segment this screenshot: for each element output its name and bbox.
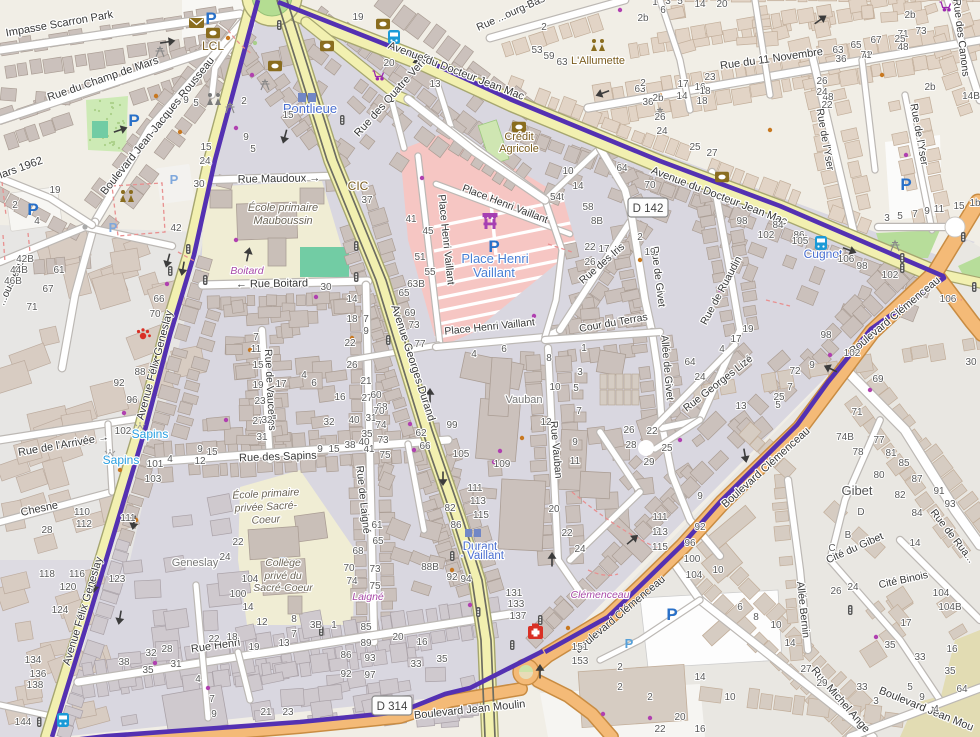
svg-text:73: 73	[377, 435, 389, 446]
svg-text:70: 70	[373, 406, 385, 417]
svg-text:66: 66	[153, 294, 165, 305]
svg-text:75: 75	[379, 450, 391, 461]
svg-text:3B: 3B	[310, 620, 323, 631]
svg-text:92: 92	[340, 669, 352, 680]
svg-text:2b: 2b	[904, 10, 916, 21]
svg-text:82: 82	[894, 490, 906, 501]
svg-text:10: 10	[770, 620, 782, 631]
svg-text:64: 64	[956, 684, 968, 695]
svg-text:8B: 8B	[591, 216, 604, 227]
svg-text:9: 9	[919, 692, 925, 703]
svg-text:14: 14	[694, 0, 706, 10]
svg-text:14: 14	[572, 181, 584, 192]
svg-text:3: 3	[884, 213, 890, 224]
svg-text:4: 4	[34, 216, 40, 227]
svg-text:3: 3	[873, 696, 879, 707]
svg-text:12: 12	[194, 456, 206, 467]
svg-text:9: 9	[572, 437, 578, 448]
svg-text:69: 69	[404, 308, 416, 319]
svg-text:110: 110	[74, 507, 90, 518]
svg-text:105: 105	[453, 449, 470, 460]
svg-text:8: 8	[546, 353, 552, 364]
svg-text:Laigné: Laigné	[352, 591, 384, 603]
svg-text:75: 75	[369, 581, 381, 592]
svg-text:111: 111	[467, 483, 483, 494]
svg-text:3: 3	[577, 367, 583, 378]
svg-text:113: 113	[652, 527, 668, 538]
svg-text:98: 98	[820, 330, 832, 341]
svg-text:82: 82	[444, 503, 456, 514]
svg-text:Vauban: Vauban	[505, 394, 542, 406]
svg-text:87: 87	[911, 474, 923, 485]
svg-text:9: 9	[183, 95, 189, 106]
svg-text:B: B	[845, 530, 852, 541]
svg-text:26: 26	[654, 112, 666, 123]
svg-text:58: 58	[582, 202, 594, 213]
svg-text:113: 113	[470, 496, 486, 507]
svg-text:17: 17	[677, 79, 689, 90]
svg-text:98: 98	[736, 216, 748, 227]
svg-text:100: 100	[684, 554, 701, 565]
svg-text:35: 35	[436, 654, 448, 665]
svg-text:24: 24	[656, 126, 668, 137]
svg-text:7: 7	[209, 694, 215, 705]
svg-text:106: 106	[838, 254, 855, 265]
svg-text:3: 3	[665, 0, 671, 7]
svg-text:18: 18	[699, 86, 711, 97]
svg-text:22: 22	[208, 634, 220, 645]
svg-text:70: 70	[644, 180, 656, 191]
svg-text:7: 7	[363, 314, 369, 325]
svg-text:4: 4	[719, 344, 725, 355]
svg-text:68: 68	[352, 546, 364, 557]
svg-text:96: 96	[684, 538, 696, 549]
svg-text:29: 29	[816, 678, 828, 689]
svg-text:19: 19	[49, 185, 61, 196]
svg-text:102: 102	[844, 348, 861, 359]
svg-text:2b: 2b	[652, 93, 664, 104]
svg-text:29: 29	[643, 457, 655, 468]
svg-text:32: 32	[323, 417, 335, 428]
svg-text:65: 65	[398, 288, 410, 299]
svg-text:24: 24	[574, 544, 586, 555]
svg-text:18: 18	[226, 632, 238, 643]
svg-text:D 314: D 314	[377, 701, 408, 713]
svg-text:73: 73	[915, 26, 927, 37]
svg-text:53: 53	[531, 45, 543, 56]
svg-text:24: 24	[219, 552, 231, 563]
svg-text:22: 22	[584, 242, 596, 253]
svg-text:9: 9	[697, 491, 703, 502]
svg-text:86: 86	[450, 520, 462, 531]
svg-text:26: 26	[584, 257, 596, 268]
svg-text:1: 1	[652, 0, 658, 8]
svg-text:28: 28	[625, 440, 637, 451]
svg-text:92: 92	[446, 572, 458, 583]
svg-text:15: 15	[252, 360, 264, 371]
svg-text:22: 22	[654, 724, 666, 735]
svg-text:33: 33	[914, 652, 926, 663]
svg-text:17: 17	[900, 618, 912, 629]
svg-text:70: 70	[343, 563, 355, 574]
svg-text:74: 74	[375, 420, 387, 431]
svg-text:28: 28	[161, 644, 173, 655]
svg-text:67: 67	[870, 35, 882, 46]
svg-text:P: P	[170, 172, 179, 187]
svg-text:33: 33	[410, 659, 422, 670]
svg-text:64: 64	[616, 163, 628, 174]
svg-text:P: P	[205, 9, 216, 28]
svg-text:14: 14	[784, 638, 796, 649]
svg-text:10: 10	[549, 382, 561, 393]
svg-text:31: 31	[170, 659, 182, 670]
svg-text:98: 98	[856, 261, 868, 272]
svg-text:8: 8	[753, 612, 759, 623]
svg-text:Coeur: Coeur	[251, 513, 281, 527]
svg-text:45: 45	[422, 226, 434, 237]
svg-text:5: 5	[573, 383, 579, 394]
svg-text:35: 35	[944, 666, 956, 677]
svg-text:20: 20	[674, 712, 686, 723]
svg-text:88: 88	[134, 367, 146, 378]
svg-text:2: 2	[637, 232, 643, 243]
svg-text:9: 9	[243, 132, 249, 143]
svg-text:22: 22	[344, 338, 356, 349]
svg-text:100: 100	[230, 589, 247, 600]
svg-text:153: 153	[572, 656, 589, 667]
svg-text:109: 109	[494, 459, 511, 470]
svg-text:16: 16	[946, 644, 958, 655]
svg-text:89: 89	[360, 638, 372, 649]
svg-text:81: 81	[885, 448, 897, 459]
svg-text:Place Henri: Place Henri	[461, 251, 528, 266]
svg-text:2b: 2b	[637, 13, 649, 24]
svg-text:Collège: Collège	[265, 557, 301, 569]
svg-text:25: 25	[689, 142, 701, 153]
svg-text:151: 151	[572, 642, 589, 653]
svg-text:73: 73	[369, 564, 381, 575]
svg-text:24: 24	[816, 87, 828, 98]
svg-text:20: 20	[548, 504, 560, 515]
svg-text:14: 14	[242, 602, 254, 613]
svg-text:99: 99	[446, 420, 458, 431]
svg-text:78: 78	[852, 447, 864, 458]
svg-text:7: 7	[912, 209, 918, 220]
svg-text:privé du: privé du	[263, 570, 302, 582]
svg-text:22: 22	[232, 537, 244, 548]
svg-text:17: 17	[730, 334, 742, 345]
svg-text:11: 11	[570, 456, 581, 467]
svg-text:19: 19	[644, 247, 656, 258]
svg-text:Sapins: Sapins	[103, 453, 140, 467]
svg-text:37: 37	[361, 195, 373, 206]
svg-text:91: 91	[933, 486, 945, 497]
svg-text:LCL: LCL	[202, 39, 224, 53]
svg-text:13: 13	[278, 638, 290, 649]
svg-text:6: 6	[501, 344, 507, 355]
svg-text:16: 16	[694, 724, 706, 735]
svg-text:12: 12	[256, 617, 268, 628]
svg-text:18: 18	[346, 314, 358, 325]
svg-text:124: 124	[52, 605, 69, 616]
svg-text:41: 41	[405, 214, 417, 225]
svg-text:93: 93	[944, 499, 956, 510]
svg-text:Rue Maudoux →: Rue Maudoux →	[238, 172, 321, 185]
svg-text:71: 71	[860, 50, 872, 61]
svg-text:4: 4	[167, 454, 173, 465]
svg-text:2: 2	[617, 682, 623, 693]
svg-text:25: 25	[773, 392, 785, 403]
svg-text:11: 11	[251, 344, 262, 355]
svg-text:15: 15	[953, 201, 965, 212]
svg-text:10: 10	[562, 166, 574, 177]
svg-text:2: 2	[647, 692, 653, 703]
svg-text:9: 9	[809, 360, 815, 371]
svg-text:26: 26	[830, 586, 842, 597]
svg-text:102: 102	[882, 270, 899, 281]
svg-text:Gibet: Gibet	[841, 483, 872, 498]
svg-text:123: 123	[109, 574, 126, 585]
svg-text:92: 92	[113, 378, 125, 389]
svg-text:65: 65	[372, 536, 384, 547]
svg-text:120: 120	[60, 582, 77, 593]
svg-text:4: 4	[933, 704, 939, 715]
svg-text:11: 11	[934, 204, 945, 215]
svg-text:6: 6	[660, 5, 666, 16]
svg-text:5: 5	[907, 682, 913, 693]
svg-text:30: 30	[965, 357, 977, 368]
svg-text:102: 102	[758, 230, 775, 241]
svg-text:94: 94	[460, 574, 472, 585]
svg-text:54t: 54t	[550, 192, 564, 203]
svg-text:137: 137	[510, 611, 527, 622]
svg-text:L'Allumette: L'Allumette	[571, 55, 625, 67]
svg-text:Vaillant: Vaillant	[473, 265, 515, 280]
svg-text:61: 61	[53, 265, 65, 276]
svg-text:← Rue Boitard: ← Rue Boitard	[236, 277, 308, 290]
svg-text:15: 15	[328, 444, 340, 455]
svg-text:51: 51	[414, 252, 426, 263]
svg-text:20: 20	[392, 632, 404, 643]
svg-text:· Vaillant: · Vaillant	[460, 550, 505, 562]
svg-text:38: 38	[344, 440, 356, 451]
svg-text:10: 10	[712, 565, 724, 576]
svg-text:20: 20	[716, 0, 728, 10]
svg-text:85: 85	[360, 622, 372, 633]
svg-text:1: 1	[331, 620, 337, 631]
svg-text:2: 2	[241, 96, 247, 107]
svg-text:P: P	[666, 605, 677, 624]
svg-text:101: 101	[147, 459, 164, 470]
svg-text:66: 66	[419, 441, 431, 452]
svg-text:96: 96	[126, 395, 138, 406]
svg-text:24: 24	[199, 156, 211, 167]
svg-text:103: 103	[145, 474, 162, 485]
svg-text:48: 48	[897, 42, 909, 53]
svg-text:CIC: CIC	[348, 179, 369, 193]
svg-text:27: 27	[800, 664, 812, 675]
svg-text:9: 9	[317, 444, 323, 455]
svg-text:23: 23	[282, 707, 294, 718]
svg-text:73: 73	[408, 320, 420, 331]
svg-text:23: 23	[254, 396, 266, 407]
svg-text:14: 14	[694, 672, 706, 683]
svg-text:36: 36	[835, 54, 847, 65]
svg-text:4: 4	[301, 370, 307, 381]
svg-text:22: 22	[561, 528, 573, 539]
svg-text:93: 93	[364, 653, 376, 664]
svg-text:1: 1	[581, 343, 587, 354]
svg-text:30: 30	[193, 179, 205, 190]
svg-text:25: 25	[661, 443, 673, 454]
svg-text:86: 86	[340, 650, 352, 661]
svg-text:Mauboussin: Mauboussin	[253, 215, 312, 227]
svg-text:104: 104	[933, 588, 950, 599]
svg-text:26: 26	[816, 76, 828, 87]
svg-text:111: 111	[120, 513, 136, 524]
svg-text:19: 19	[252, 380, 264, 391]
svg-text:Crédit: Crédit	[504, 131, 533, 143]
svg-text:74: 74	[346, 576, 358, 587]
svg-text:13: 13	[429, 79, 441, 90]
svg-text:35: 35	[884, 640, 896, 651]
svg-text:72: 72	[789, 366, 801, 377]
svg-text:4: 4	[195, 674, 201, 685]
svg-text:32: 32	[261, 415, 273, 426]
svg-text:22: 22	[646, 426, 658, 437]
svg-text:P: P	[900, 175, 911, 194]
svg-text:P: P	[625, 636, 634, 651]
svg-text:42: 42	[170, 223, 182, 234]
svg-text:14: 14	[676, 91, 688, 102]
svg-text:24: 24	[847, 582, 859, 593]
svg-text:P: P	[128, 111, 139, 130]
svg-text:17: 17	[275, 379, 287, 390]
svg-text:111: 111	[652, 512, 668, 523]
svg-text:21: 21	[360, 376, 372, 387]
svg-text:62: 62	[415, 428, 427, 439]
svg-text:14: 14	[346, 294, 358, 305]
svg-text:2: 2	[640, 78, 646, 89]
svg-text:105: 105	[792, 236, 809, 247]
svg-text:19: 19	[248, 642, 260, 653]
svg-text:138: 138	[27, 680, 44, 691]
svg-text:69: 69	[872, 374, 884, 385]
svg-text:10: 10	[724, 692, 736, 703]
svg-text:1b: 1b	[969, 198, 980, 209]
svg-text:42B: 42B	[16, 254, 34, 265]
svg-text:9: 9	[197, 444, 203, 455]
svg-text:20: 20	[383, 58, 395, 69]
svg-text:9: 9	[363, 326, 369, 337]
svg-text:70: 70	[149, 309, 161, 320]
svg-text:77: 77	[414, 339, 426, 350]
svg-text:7: 7	[576, 406, 582, 417]
svg-text:131: 131	[506, 588, 523, 599]
svg-text:22: 22	[821, 100, 833, 111]
svg-text:26: 26	[346, 360, 358, 371]
svg-text:2: 2	[12, 200, 18, 211]
svg-text:26: 26	[623, 425, 635, 436]
svg-text:63B: 63B	[407, 279, 425, 290]
svg-text:18: 18	[696, 96, 708, 107]
svg-text:27: 27	[706, 148, 718, 159]
svg-text:40: 40	[358, 437, 370, 448]
svg-text:6: 6	[737, 602, 743, 613]
svg-text:77: 77	[873, 435, 885, 446]
svg-text:14B: 14B	[962, 91, 980, 102]
svg-text:63: 63	[556, 57, 568, 68]
svg-text:38: 38	[118, 657, 130, 668]
svg-text:85: 85	[898, 458, 910, 469]
svg-text:24: 24	[694, 372, 706, 383]
svg-text:13: 13	[735, 401, 747, 412]
svg-text:5: 5	[897, 211, 903, 222]
svg-text:D 142: D 142	[633, 203, 664, 215]
svg-text:104: 104	[242, 574, 259, 585]
svg-text:102: 102	[115, 426, 132, 437]
svg-text:12: 12	[540, 417, 552, 428]
svg-text:84: 84	[911, 508, 923, 519]
svg-text:64: 64	[684, 357, 696, 368]
svg-text:D: D	[857, 507, 864, 518]
svg-text:133: 133	[508, 599, 525, 610]
svg-text:71: 71	[26, 302, 38, 313]
svg-text:92: 92	[694, 522, 706, 533]
svg-text:9: 9	[924, 206, 930, 217]
svg-text:15: 15	[282, 110, 294, 121]
svg-text:5: 5	[677, 0, 683, 7]
svg-text:55: 55	[424, 267, 436, 278]
svg-text:19: 19	[352, 12, 364, 23]
svg-text:67: 67	[42, 284, 54, 295]
svg-text:2b: 2b	[924, 82, 936, 93]
svg-text:32: 32	[145, 648, 157, 659]
svg-text:46B: 46B	[4, 276, 22, 287]
svg-text:15: 15	[200, 142, 212, 153]
svg-text:88B: 88B	[421, 562, 439, 573]
svg-text:C: C	[828, 543, 835, 554]
svg-text:P: P	[109, 220, 118, 235]
svg-text:5: 5	[193, 98, 199, 109]
svg-text:33: 33	[856, 682, 868, 693]
svg-text:Sacré-Coeur: Sacré-Coeur	[253, 582, 313, 594]
svg-text:8: 8	[291, 614, 297, 625]
svg-text:104: 104	[686, 570, 703, 581]
svg-text:16: 16	[334, 392, 346, 403]
svg-text:59: 59	[543, 51, 555, 62]
svg-text:115: 115	[473, 510, 489, 521]
svg-text:61: 61	[371, 520, 383, 531]
svg-text:14: 14	[909, 538, 921, 549]
svg-text:16: 16	[416, 637, 428, 648]
svg-text:44B: 44B	[10, 265, 28, 276]
svg-text:Geneslay: Geneslay	[172, 557, 219, 569]
svg-text:17: 17	[598, 244, 610, 255]
svg-text:116: 116	[69, 569, 85, 580]
svg-text:5: 5	[250, 144, 256, 155]
svg-text:71: 71	[851, 407, 863, 418]
svg-text:80: 80	[873, 470, 885, 481]
svg-text:31: 31	[256, 432, 268, 443]
svg-text:École primaire: École primaire	[248, 201, 318, 214]
svg-text:7: 7	[787, 382, 793, 393]
svg-text:19: 19	[742, 324, 754, 335]
svg-text:30: 30	[320, 282, 332, 293]
svg-text:97: 97	[364, 670, 376, 681]
svg-text:9: 9	[211, 709, 217, 720]
svg-text:144: 144	[15, 717, 32, 728]
